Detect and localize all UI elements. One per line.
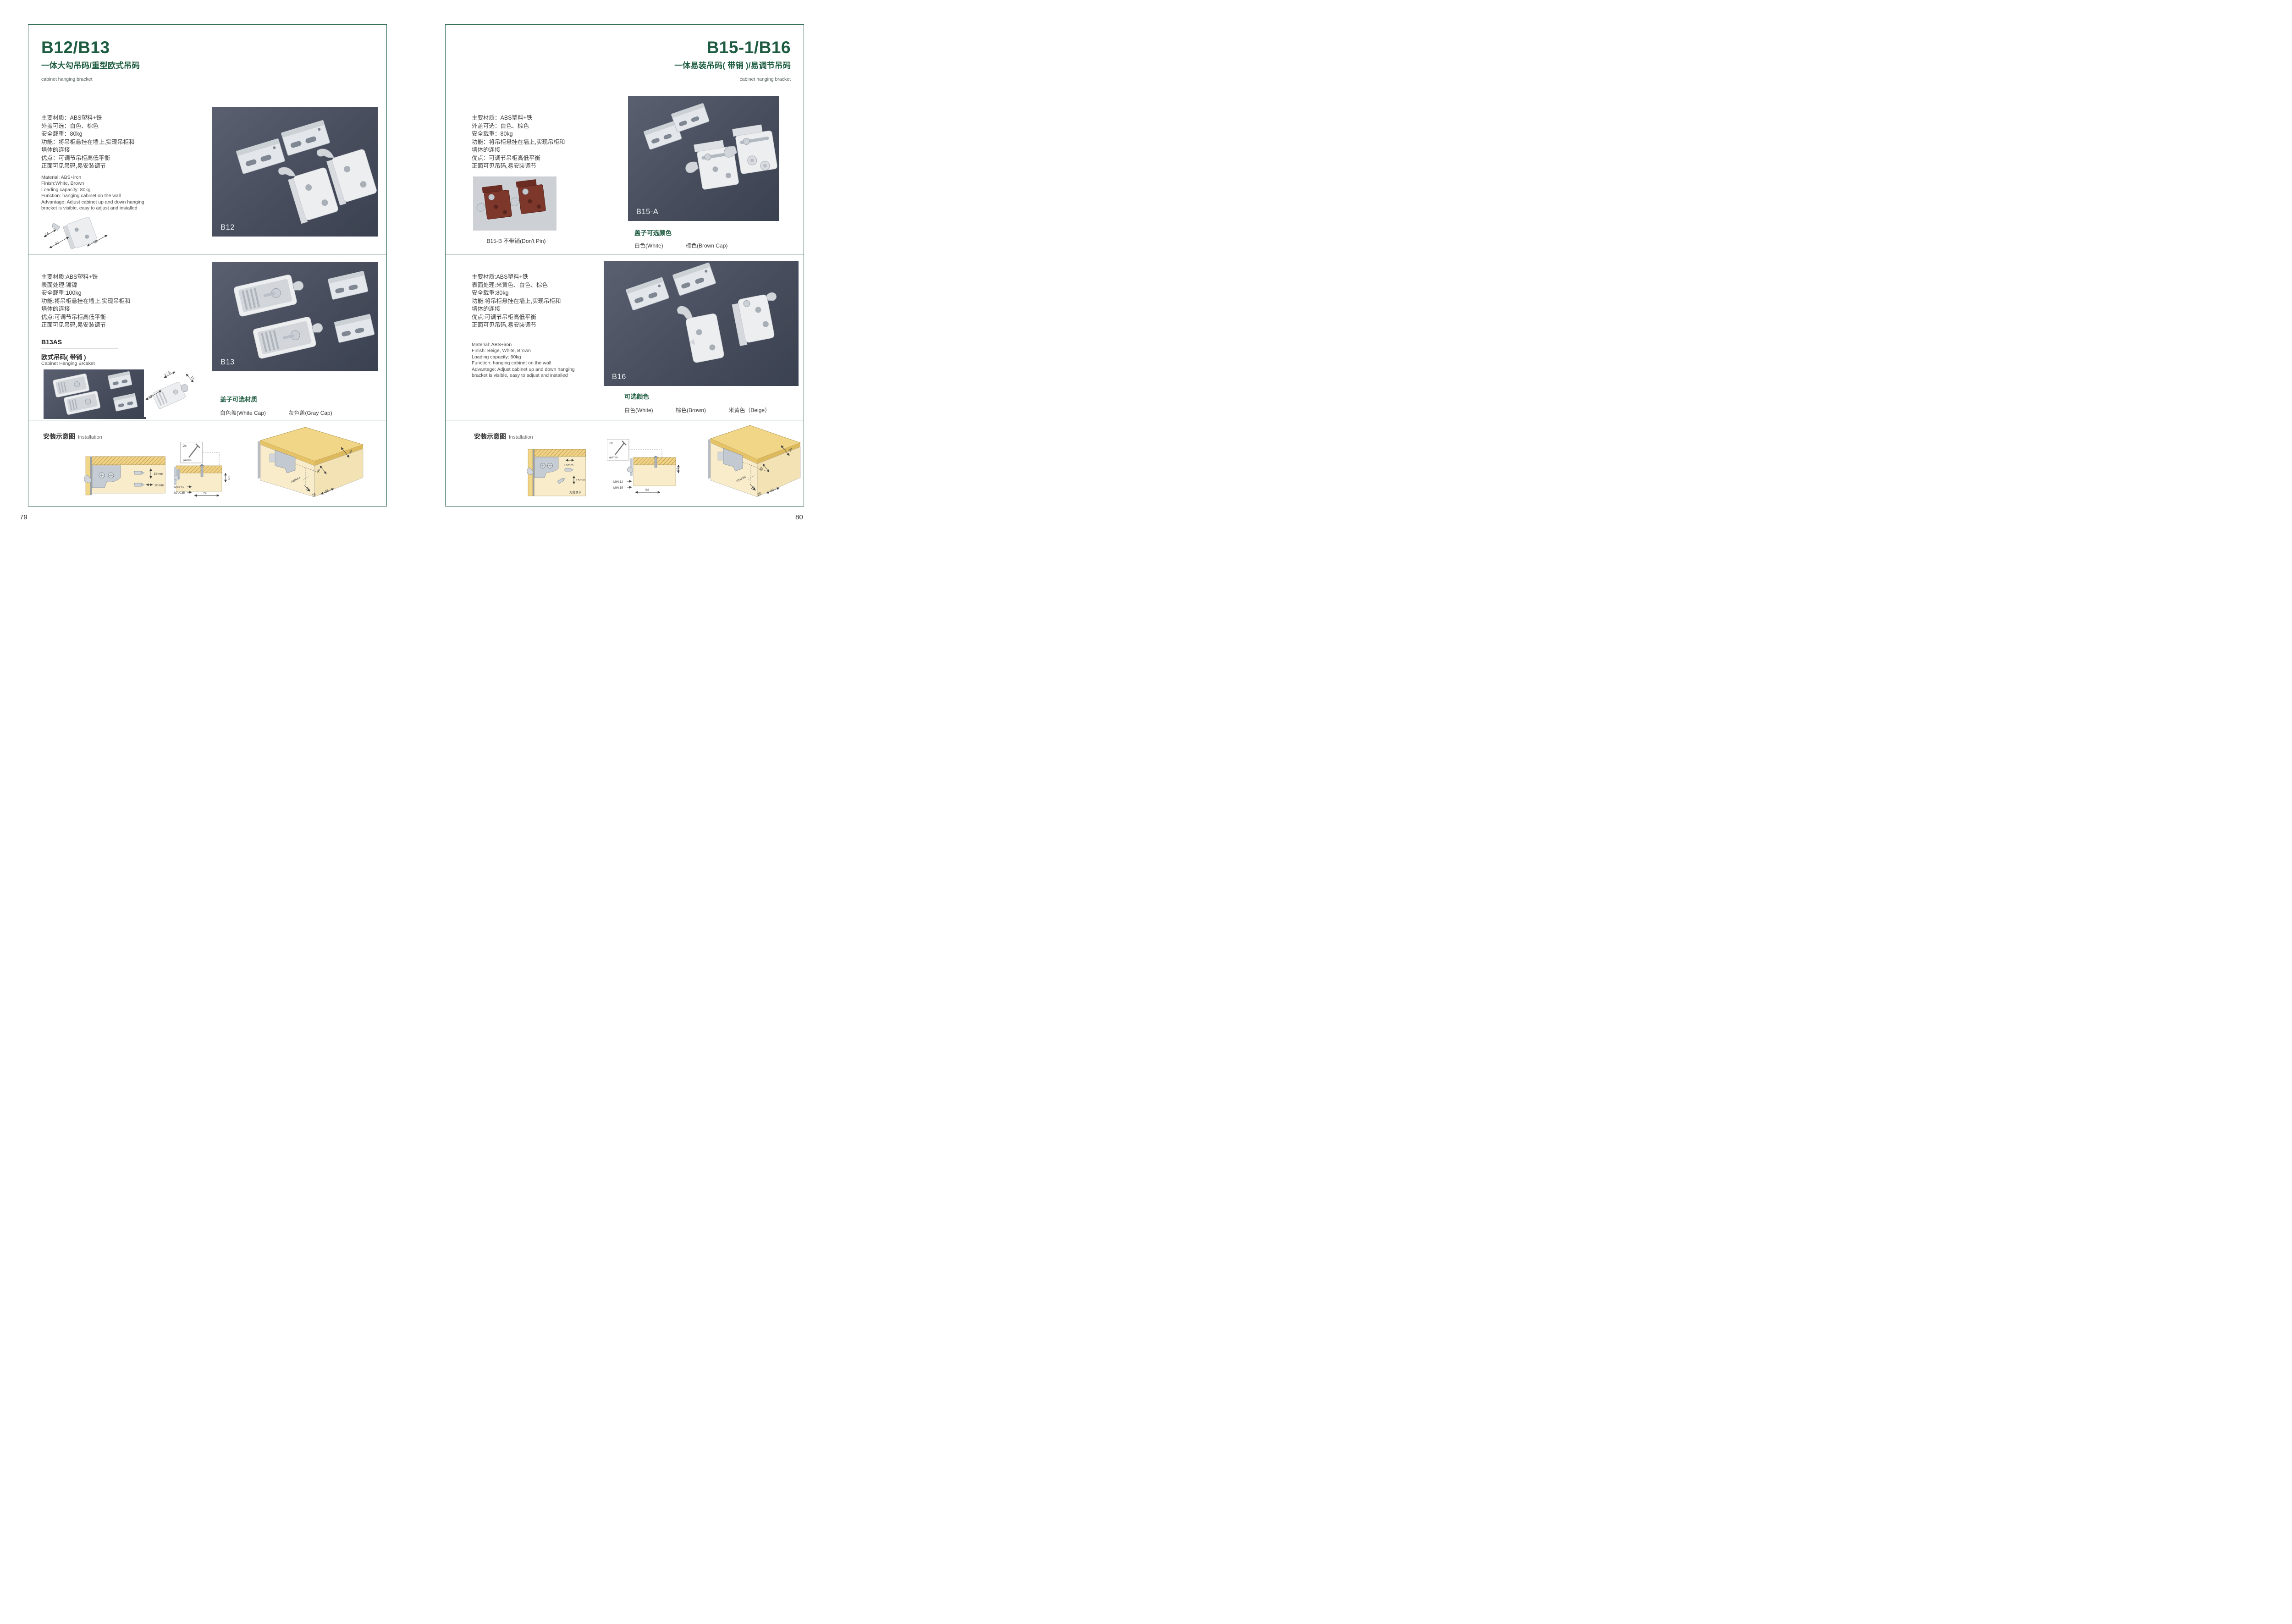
product-photo-b15b: [473, 176, 556, 231]
dim-15mm-h: 15mm: [564, 463, 573, 467]
spec-line: 优点:可调节吊柜高低平衡: [41, 314, 130, 322]
spec-line: bracket is visible, easy to adjust and i…: [41, 205, 144, 211]
dim-15mm-v: 15mm: [576, 478, 585, 482]
option-brown: 棕色(Brown): [676, 407, 706, 413]
installation-diagram-side-view: 15mm 20mm: [83, 455, 167, 499]
option-white: 白色(White): [634, 242, 663, 249]
spec-line: Advantage: Adjust cabinet up and down ha…: [41, 199, 144, 205]
product-photo-b13as: [44, 369, 146, 419]
installation-title-cn: 安装示意图: [474, 433, 506, 440]
screw-section-drawing: 2x φ4mm 19 MIN.12 MIN.15 58: [607, 439, 680, 498]
specs-cn-b13: 主要材质:ABS塑料+铁 表面处理:镀镍 安全载重:100kg 功能:将吊柜悬挂…: [41, 273, 130, 330]
spec-line: 正面可见吊码,易安装调节: [41, 162, 134, 171]
photo-label-b13: B13: [220, 358, 235, 367]
options-list: 白色(White) 棕色(Brown Cap): [634, 242, 749, 249]
isometric-drawing: 16 40 RMAX4 19 18 32: [251, 426, 367, 500]
option-brown-cap: 棕色(Brown Cap): [686, 242, 727, 249]
model-name-cn: 欧式吊码( 带销 ): [41, 352, 86, 361]
section-b16: 主要材质:ABS塑料+铁 表面处理:米黄色、白色、棕色 安全载重:80kg 功能…: [446, 254, 804, 420]
installation-title-en: Installation: [509, 435, 533, 440]
spec-line: 正面可见吊码,易安装调节: [472, 321, 561, 330]
spec-line: Finish:White, Brown: [41, 181, 144, 187]
spec-line: 正面可见吊码,易安装调节: [472, 162, 565, 171]
spec-line: 墙体的连接: [41, 146, 134, 154]
screw-count: 2x: [609, 441, 613, 445]
installation-title: 安装示意图Installation: [43, 432, 102, 441]
b16-photo-drawing: [604, 261, 799, 386]
installation-title: 安装示意图Installation: [474, 432, 533, 441]
spec-line: 表面处理:米黄色、白色、棕色: [472, 281, 561, 290]
section-b15: 主要材质：ABS塑料+铁 外盖可选：白色、棕色 安全载重：80kg 功能：将吊柜…: [446, 85, 804, 254]
photo-label-b16: B16: [612, 373, 626, 381]
page-caption: cabinet hanging bracket: [41, 77, 374, 82]
bracket-drawing: [152, 379, 192, 409]
spec-line: bracket is visible, easy to adjust and i…: [472, 373, 575, 379]
option-gray-cap: 灰色盖(Gray Cap): [288, 410, 332, 416]
options-list: 白色盖(White Cap) 灰色盖(Gray Cap): [220, 409, 353, 417]
dim-label-32: 32: [55, 241, 60, 246]
page-subtitle: 一体大勾吊码/重型欧式吊码: [41, 60, 374, 71]
specs-cn-b15: 主要材质：ABS塑料+铁 外盖可选：白色、棕色 安全载重：80kg 功能：将吊柜…: [472, 114, 565, 171]
product-photo-b15a: B15-A: [628, 96, 779, 221]
side-view-drawing: 15mm 15mm 方便调节: [526, 445, 589, 500]
page-title: B15-1/B16: [458, 39, 791, 57]
page-caption: cabinet hanging bracket: [458, 77, 791, 82]
b15b-photo-drawing: [473, 176, 556, 231]
screw-section-drawing: 2x φ4mm 18 MIN.15 MAX.35 58: [174, 442, 234, 498]
dimension-diagram-b12: 14 32 32: [40, 217, 118, 253]
spec-line: 安全载重:80kg: [472, 289, 561, 297]
installation-title-en: Installation: [78, 435, 102, 440]
spec-line: Material: ABS+iron: [472, 342, 575, 348]
option-beige: 米黄色（Beige）: [728, 407, 770, 413]
wall-rail: [626, 277, 669, 311]
installation-diagram-isometric: 30 32 RMAX4 19 20 32: [702, 424, 804, 502]
dim-label-14: 14: [44, 231, 50, 237]
dimension-diagram-b13as: 32 17.5 14: [144, 369, 200, 417]
spec-line: Loading capacity: 80kg: [472, 354, 575, 360]
section-b13: 主要材质:ABS塑料+铁 表面处理:镀镍 安全载重:100kg 功能:将吊柜悬挂…: [28, 254, 386, 420]
spec-line: Function: hanging cabinet on the wall: [472, 360, 575, 366]
spec-line: 功能：将吊柜悬挂在墙上,实现吊柜和: [41, 138, 134, 147]
spec-line: 安全载重:100kg: [41, 289, 130, 297]
product-photo-b12: B12: [212, 107, 378, 237]
note-adjust: 方便调节: [569, 490, 582, 494]
wall-rail: [236, 138, 285, 174]
spec-line: 主要材质:ABS塑料+铁: [41, 273, 130, 281]
spec-line: Advantage: Adjust cabinet up and down ha…: [472, 367, 575, 373]
spec-line: 主要材质：ABS塑料+铁: [41, 114, 134, 122]
bracket-drawing: [51, 217, 98, 253]
wall-rail: [671, 103, 710, 132]
page-number-left: 79: [20, 513, 28, 521]
model-underline: [41, 348, 118, 348]
brown-bracket: [508, 179, 546, 215]
wall-rail: [113, 393, 138, 411]
options-title: 盖子可选材质: [220, 394, 257, 403]
dim-depth-18: 18: [227, 476, 231, 479]
specs-cn-b12: 主要材质：ABS塑料+铁 外盖可选：白色、棕色 安全载重：80kg 功能：将吊柜…: [41, 114, 134, 171]
installation-title-cn: 安装示意图: [43, 433, 75, 440]
wall-rail: [672, 263, 716, 296]
b13-photo-drawing: [212, 262, 378, 371]
bracket-housing: [253, 314, 326, 359]
dim-depth-19: 19: [676, 468, 680, 471]
option-white: 白色(White): [624, 407, 653, 413]
installation-diagram-side-view: 15mm 15mm 方便调节: [526, 445, 589, 502]
product-photo-b16: B16: [604, 261, 799, 386]
specs-cn-b16: 主要材质:ABS塑料+铁 表面处理:米黄色、白色、棕色 安全载重:80kg 功能…: [472, 273, 561, 330]
specs-en-b16: Material: ABS+iron Finish: Beige, White,…: [472, 342, 575, 379]
spec-line: 功能:将吊柜悬挂在墙上,实现吊柜和: [472, 297, 561, 306]
spec-line: 墙体的连接: [41, 305, 130, 314]
installation-diagram-screw-section: 2x φ4mm 18 MIN.15 MAX.35 58: [174, 442, 234, 500]
b15a-photo-drawing: [628, 96, 779, 221]
photo-label-b15a: B15-A: [636, 208, 658, 216]
dim-15mm: 15mm: [154, 472, 163, 476]
section-b12: 主要材质：ABS塑料+铁 外盖可选：白色、棕色 安全载重：80kg 功能：将吊柜…: [28, 85, 386, 254]
isometric-drawing: 30 32 RMAX4 19 20 32: [702, 424, 804, 500]
spec-line: Loading capacity: 80kg: [41, 187, 144, 193]
page-title: B12/B13: [41, 39, 374, 57]
spec-line: 主要材质:ABS塑料+铁: [472, 273, 561, 281]
spec-line: 表面处理:镀镍: [41, 281, 130, 290]
page-header-text: B15-1/B16 一体易装吊码( 带销 )/易调节吊码 cabinet han…: [458, 39, 791, 82]
spec-line: 优点:可调节吊柜高低平衡: [472, 314, 561, 322]
spec-line: Function: hanging cabinet on the wall: [41, 193, 144, 199]
spec-line: 优点：可调节吊柜高低平衡: [472, 154, 565, 163]
dim-58: 58: [645, 488, 649, 492]
wall-rail: [328, 271, 368, 300]
section-installation: 安装示意图Installation 15mm 15mm 方便调节: [446, 420, 804, 506]
b13as-dims-drawing: 32 17.5 14: [144, 369, 200, 417]
spec-line: 外盖可选：白色、棕色: [472, 122, 565, 131]
wall-rail: [108, 371, 132, 389]
screw-count: 2x: [183, 444, 187, 448]
catalog-page-b12-b13: B12/B13 一体大勾吊码/重型欧式吊码 cabinet hanging br…: [28, 24, 387, 506]
product-photo-b13: B13: [212, 262, 378, 371]
option-white-cap: 白色盖(White Cap): [220, 410, 266, 416]
options-title: 可选颜色: [624, 391, 649, 401]
spec-line: 安全载重：80kg: [41, 130, 134, 138]
adjustable-bracket: [677, 300, 725, 364]
spec-line: 墙体的连接: [472, 305, 561, 314]
options-list: 白色(White) 棕色(Brown) 米黄色（Beige）: [624, 406, 791, 414]
dim-max35: MAX.35: [174, 491, 185, 495]
spec-line: 墙体的连接: [472, 146, 565, 154]
spec-line: 主要材质：ABS塑料+铁: [472, 114, 565, 122]
dim-min15: MIN.15: [174, 486, 184, 489]
b12-dims-drawing: 14 32 32: [40, 217, 118, 253]
b13as-photo-drawing: [44, 369, 146, 419]
brown-bracket: [474, 184, 512, 220]
dim-min12: MIN.12: [613, 480, 623, 484]
options-title: 盖子可选颜色: [634, 228, 672, 237]
screw-diameter: φ4mm: [609, 456, 618, 459]
spec-line: 优点：可调节吊柜高低平衡: [41, 154, 134, 163]
spec-line: Material: ABS+iron: [41, 175, 144, 181]
b12-photo-drawing: [212, 107, 378, 237]
page-subtitle: 一体易装吊码( 带销 )/易调节吊码: [458, 60, 791, 71]
dim-58: 58: [204, 491, 207, 495]
page-number-right: 80: [795, 513, 803, 521]
page-header-text: B12/B13 一体大勾吊码/重型欧式吊码 cabinet hanging br…: [41, 39, 374, 82]
model-name-en: Cabinet Hanging Brcaket: [41, 361, 95, 366]
side-view-drawing: 15mm 20mm: [83, 455, 167, 497]
spec-line: 正面可见吊码,易安装调节: [41, 321, 130, 330]
spec-line: 功能:将吊柜悬挂在墙上,实现吊柜和: [41, 297, 130, 306]
wall-rail: [334, 314, 375, 343]
spec-line: Finish: Beige, White, Brown: [472, 348, 575, 354]
installation-diagram-screw-section: 2x φ4mm 19 MIN.12 MIN.15 58: [607, 439, 680, 500]
page-header: B12/B13 一体大勾吊码/重型欧式吊码 cabinet hanging br…: [28, 25, 386, 85]
page-header: B15-1/B16 一体易装吊码( 带销 )/易调节吊码 cabinet han…: [446, 25, 804, 85]
installation-diagram-isometric: 16 40 RMAX4 19 18 32: [251, 426, 367, 502]
specs-en-b12: Material: ABS+iron Finish:White, Brown L…: [41, 175, 144, 211]
photo-label-b12: B12: [220, 223, 235, 232]
model-code: B13AS: [41, 338, 62, 346]
screw-diameter: φ4mm: [183, 459, 192, 462]
dim-20mm: 20mm: [154, 483, 164, 487]
photo-caption-b15b: B15-B 不带销(Don't Pin): [466, 237, 567, 245]
adjustable-bracket: [731, 292, 784, 346]
dim-min15: MIN.15: [613, 486, 623, 490]
section-installation: 安装示意图Installation 15mm 20mm: [28, 420, 386, 506]
spec-line: 外盖可选：白色、棕色: [41, 122, 134, 131]
bracket-housing: [233, 272, 307, 317]
spec-line: 安全载重：80kg: [472, 130, 565, 138]
dim-label-32: 32: [148, 394, 154, 400]
catalog-page-b15-b16: B15-1/B16 一体易装吊码( 带销 )/易调节吊码 cabinet han…: [445, 24, 804, 506]
spec-line: 功能：将吊柜悬挂在墙上,实现吊柜和: [472, 138, 565, 147]
